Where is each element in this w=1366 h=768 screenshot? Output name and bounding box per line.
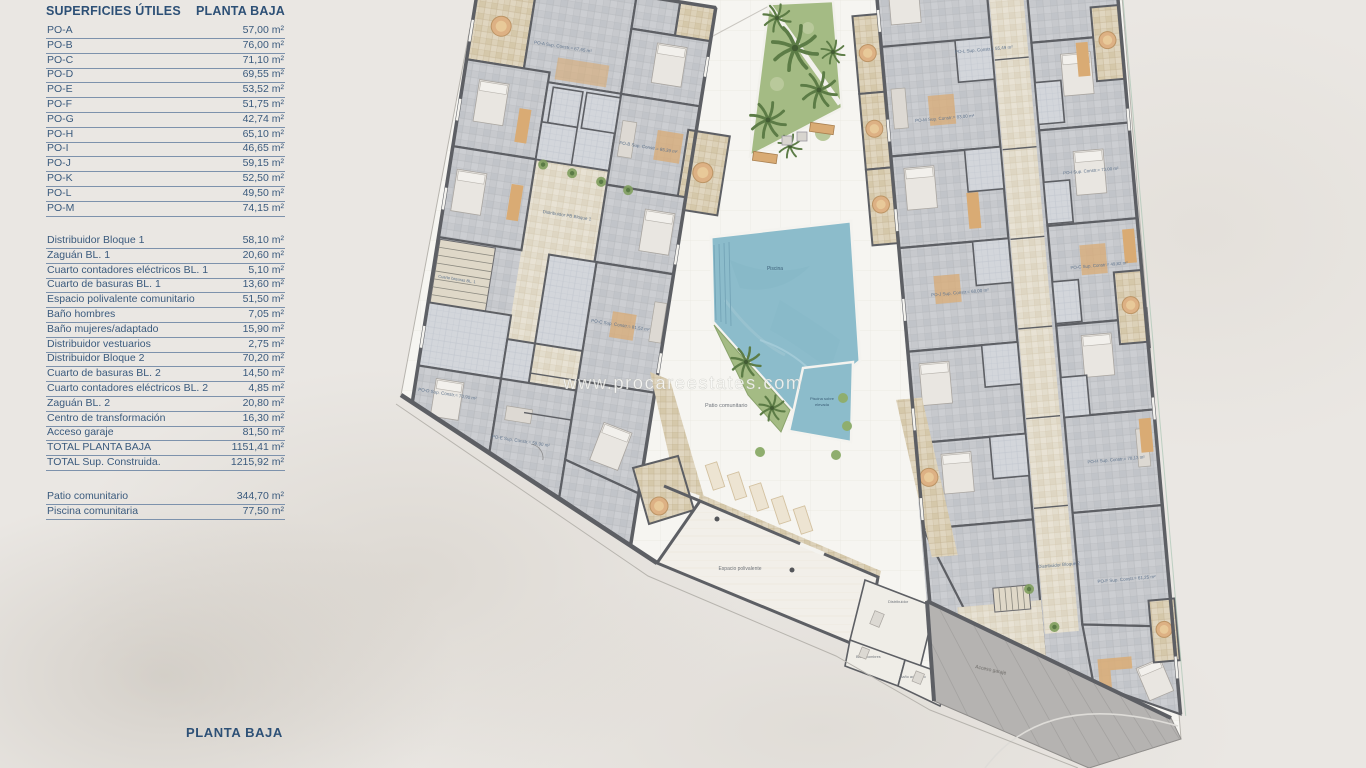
svg-text:Piscina sobre: Piscina sobre — [810, 396, 835, 401]
svg-text:Espacio polivalente: Espacio polivalente — [718, 566, 761, 572]
svg-text:elevada: elevada — [815, 402, 830, 407]
svg-text:Patio comunitario: Patio comunitario — [705, 403, 748, 409]
svg-text:www.procareestates.com: www.procareestates.com — [562, 372, 803, 393]
svg-text:Distribuidor: Distribuidor — [888, 599, 909, 604]
svg-text:Piscina: Piscina — [767, 266, 783, 272]
